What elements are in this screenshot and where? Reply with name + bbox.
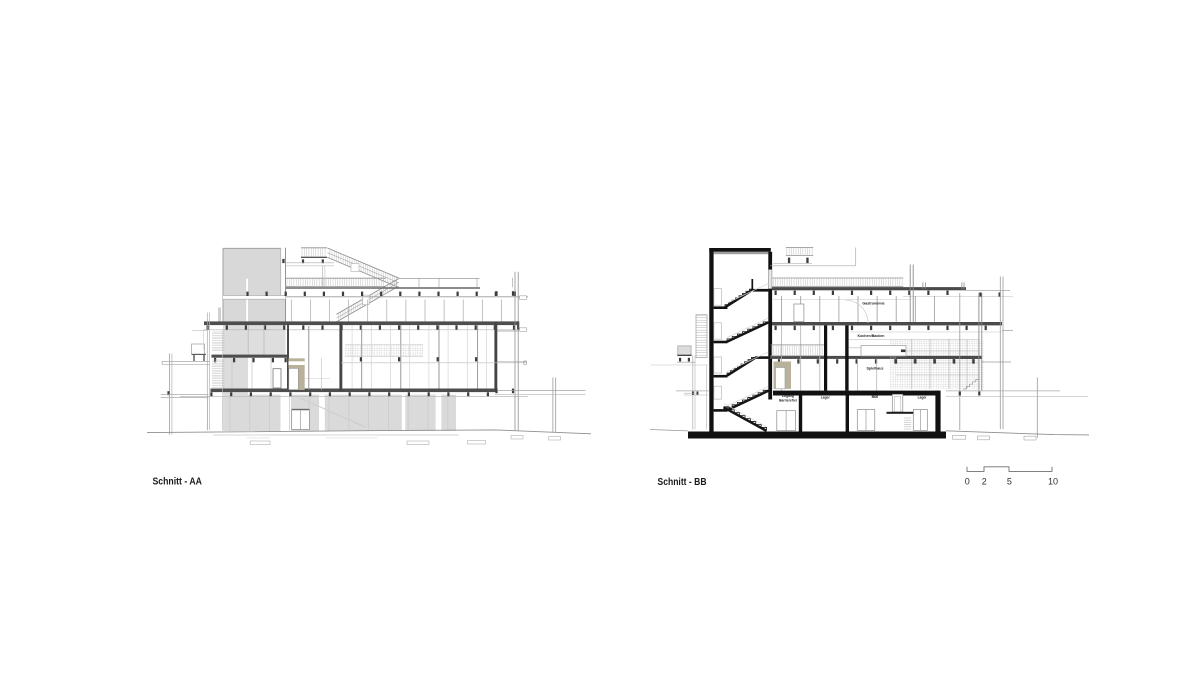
svg-text:2: 2 [982, 477, 987, 487]
svg-text:10: 10 [1048, 477, 1058, 487]
svg-text:Kochen/Backen: Kochen/Backen [858, 334, 885, 338]
svg-text:0: 0 [965, 477, 970, 487]
svg-text:5: 5 [1007, 477, 1012, 487]
svg-text:Gastronomie: Gastronomie [862, 302, 884, 306]
svg-text:Spielhaus: Spielhaus [867, 366, 884, 370]
svg-text:Lager: Lager [821, 395, 831, 399]
svg-text:Lager: Lager [918, 395, 928, 399]
svg-text:Schnitt - AA: Schnitt - AA [153, 476, 202, 487]
svg-text:Barrierefrei: Barrierefrei [779, 398, 797, 402]
svg-text:Schnitt - BB: Schnitt - BB [658, 477, 707, 488]
svg-text:Müll: Müll [872, 395, 879, 399]
